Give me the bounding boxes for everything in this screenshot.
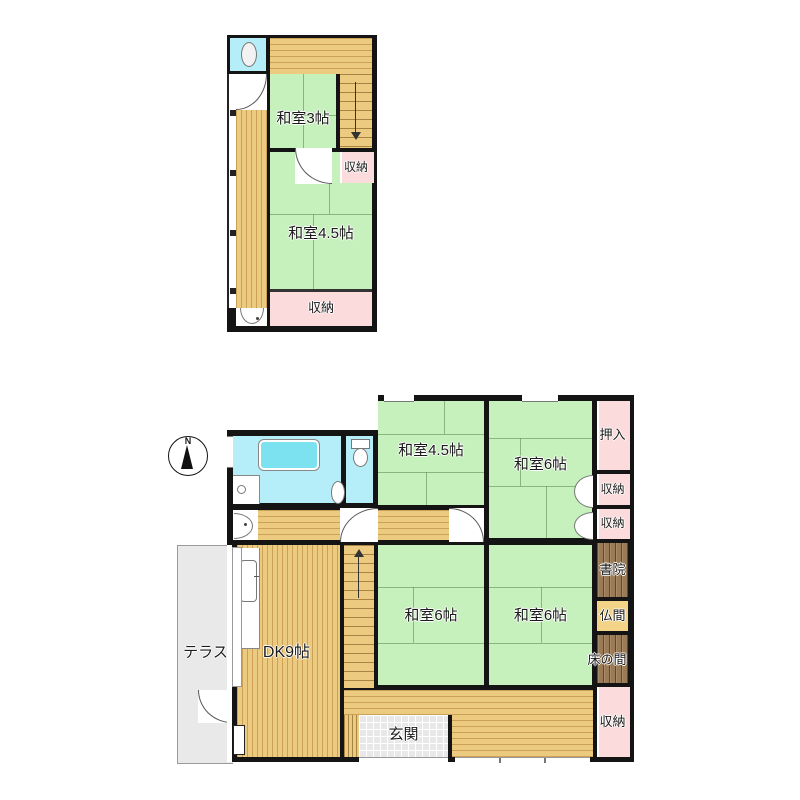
toilet-icon [353, 448, 368, 467]
room-label: 和室4.5帖 [378, 443, 484, 460]
stairs-up-arrow [358, 556, 359, 598]
room-label: 和室3帖 [267, 111, 339, 128]
hall-basin-nook [233, 510, 258, 540]
floor1-toilet-room [346, 436, 373, 503]
room-label: DK9帖 [239, 644, 334, 662]
room-label: 和室4.5帖 [270, 226, 372, 243]
room-label: 収納 [597, 517, 628, 530]
room-label: 床の間 [579, 653, 635, 667]
bathroom [233, 436, 341, 503]
stairs-down-arrow [355, 82, 356, 134]
room-label: 和室6帖 [489, 457, 592, 474]
room-label: 押入 [597, 428, 628, 442]
genkan-step [344, 715, 359, 757]
window [522, 395, 558, 402]
floor2-plan: 和室3帖 収納 和室4.5帖 収納 [227, 35, 377, 332]
washbasin-icon [331, 481, 345, 504]
bathtub-icon [259, 440, 319, 470]
door-arc [449, 508, 484, 542]
washbasin-icon [234, 513, 253, 539]
room-label: 玄関 [359, 727, 448, 744]
vanity-counter [233, 475, 260, 504]
room-label: 収納 [270, 301, 372, 315]
sliding-door-strip [232, 547, 242, 687]
kitchen-sink-icon [240, 560, 257, 602]
room-label: 書院 [597, 563, 628, 577]
toilet-icon [241, 42, 257, 67]
door-leaf [233, 725, 245, 755]
door-arc [295, 148, 332, 184]
floor2-upper-hall [270, 38, 372, 74]
washbasin-icon [240, 308, 264, 324]
room-label: 和室6帖 [489, 608, 592, 625]
floorplan-canvas: 和室3帖 収納 和室4.5帖 収納 N テラス [0, 0, 800, 800]
door-arc [236, 74, 267, 110]
floor2-toilet-room [230, 38, 266, 71]
sink-icon [237, 485, 246, 494]
compass: N [168, 436, 208, 476]
window [455, 757, 590, 763]
faucet-icon [254, 576, 259, 577]
terrace-area: テラス [177, 545, 233, 764]
room-label: 和室6帖 [378, 608, 484, 625]
room-label: 収納 [597, 715, 628, 729]
floor2-stairs-down [340, 74, 372, 148]
entrance-door [359, 757, 448, 763]
window [384, 395, 414, 402]
floor1-stairs-up [344, 545, 374, 688]
washbasin-nook [236, 308, 267, 326]
compass-needle-icon [181, 445, 193, 469]
room-label: テラス [178, 645, 233, 662]
floor1-plan: 和室4.5帖 和室6帖 押入 収納 収納 書院 仏間 床の間 収納 和室6帖 和… [227, 395, 634, 762]
room-label: 収納 [340, 161, 372, 174]
room-label: 収納 [597, 483, 628, 496]
room-label: 仏間 [597, 609, 628, 623]
door-arc [340, 508, 378, 542]
